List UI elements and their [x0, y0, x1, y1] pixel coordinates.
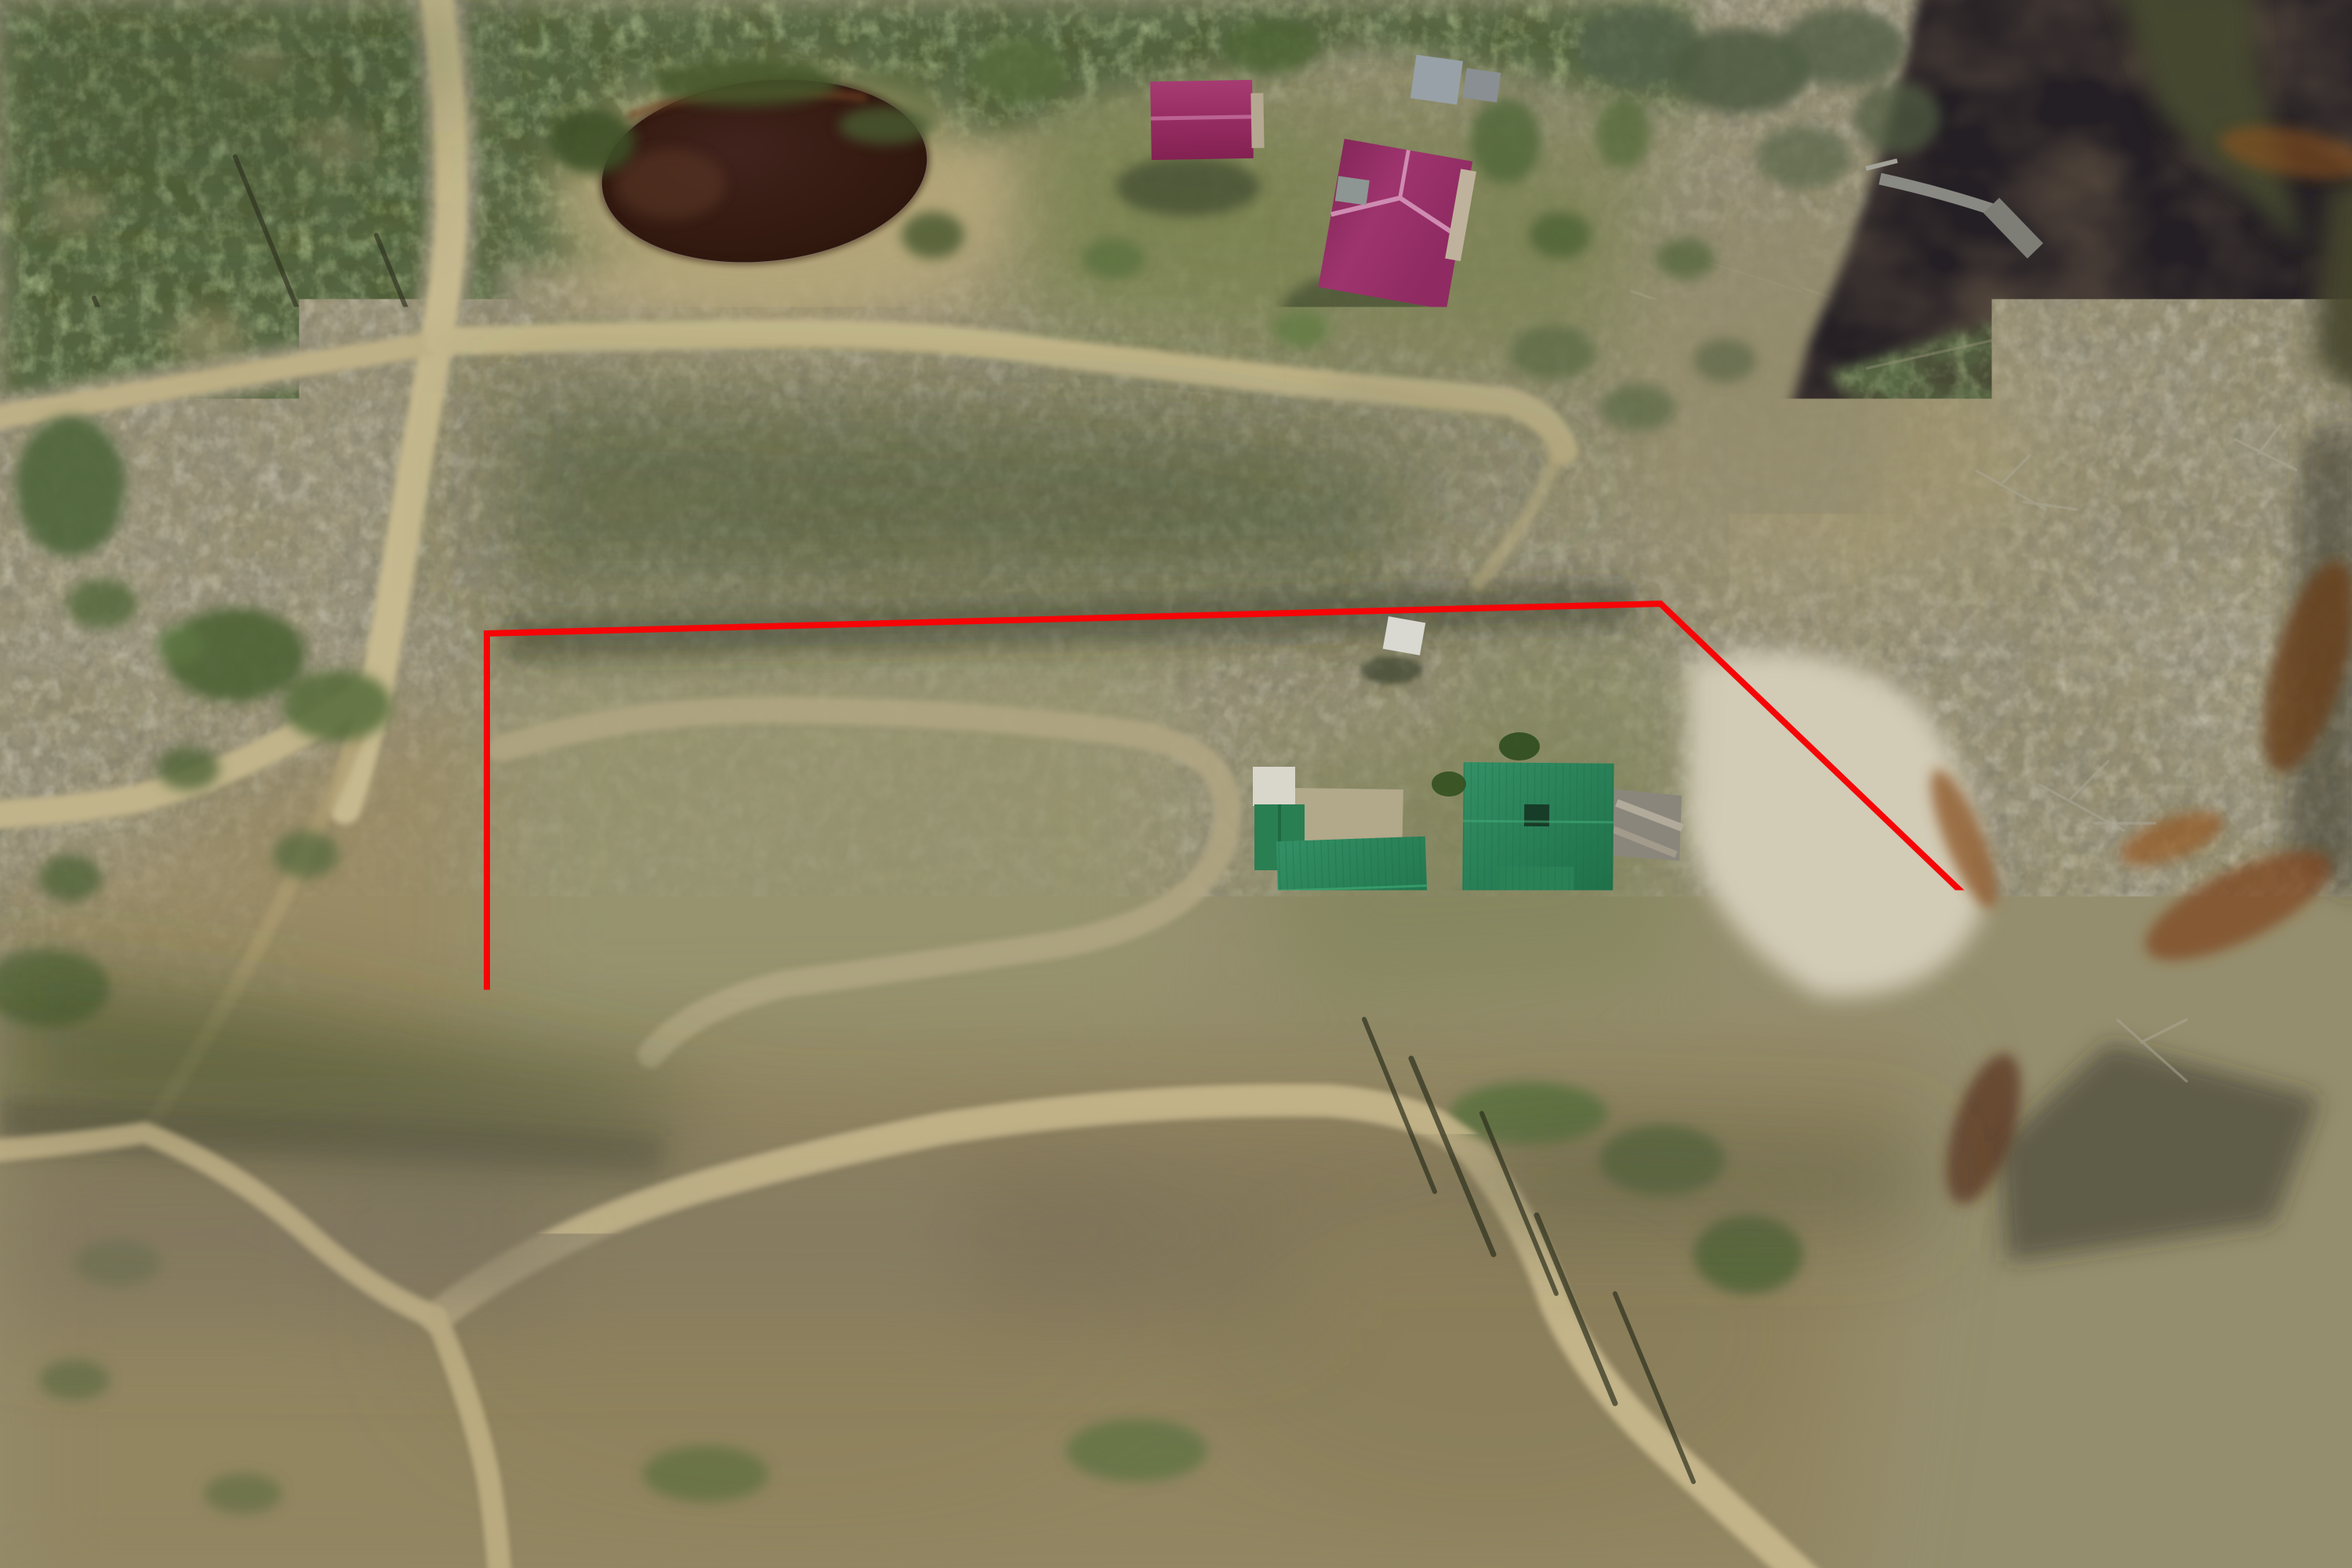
svg-text:©2021 CPAR: ©2021 CPAR	[14, 1491, 278, 1540]
